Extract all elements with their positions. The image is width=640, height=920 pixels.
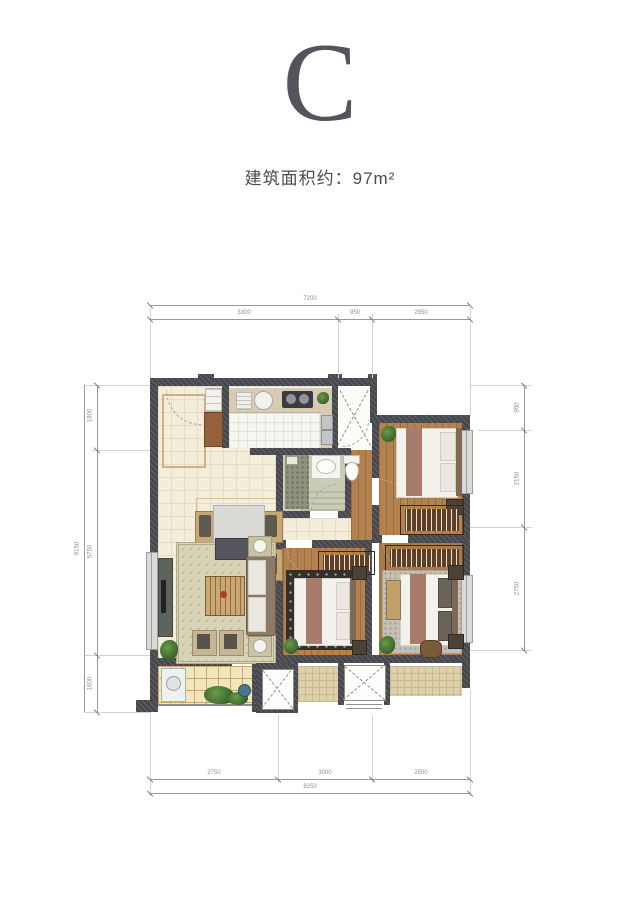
dimension-line-bottom-segments [150,779,470,780]
dimension-line-top-segments [150,319,470,320]
hallway-tile-floor [283,518,351,540]
pillow [336,612,350,640]
sofa-cushion [248,560,266,595]
dimension-line-bottom-total [150,793,470,794]
pillow [440,463,456,492]
bedroom3-window [461,575,473,643]
dimension-line-top-total [150,305,470,306]
dish-rack [236,392,252,410]
wall-bedroom1-top [370,415,470,423]
wall-bedroom1-bottom [372,535,382,543]
dim-bottom-seg: 3000 [310,770,340,777]
armchair-seat [224,634,237,649]
basin-icon [321,430,333,445]
wall-top [150,378,377,386]
extension-line [84,385,150,386]
wall-bedroom1-left [372,423,379,478]
extension-line [338,314,339,378]
bed-runner [406,428,422,496]
pier-top [328,374,342,386]
wall-bedrooms-bottom [276,655,470,663]
headboard [350,578,356,644]
living-plant [160,640,178,660]
pillow-dark [438,578,452,608]
dim-bottom-seg: 2500 [406,770,436,777]
living-room-window [146,552,158,650]
wall-bedroom1-left [372,505,379,535]
armchair-seat [197,634,210,649]
dim-top-seg: 3300 [229,310,259,317]
dimension-line-right-segments [524,385,525,650]
washing-machine-door-icon [166,676,181,691]
dim-right-seg: 950 [515,393,522,423]
dim-top-seg: 2950 [406,310,436,317]
tv-icon [161,580,166,613]
dim-left-seg: 5750 [88,537,95,567]
fridge [204,412,223,447]
sofa-cushion [248,597,266,632]
stairs-lines [346,701,382,709]
bedroom2-plant [284,638,298,654]
counter-plant [317,392,329,404]
core-pier [462,662,470,688]
floor-plan: 7200 3300 950 2950 2750 3000 2500 8250 1… [0,0,640,920]
burner-icon [299,394,309,404]
wall-bath-bottom [338,511,351,518]
wall-bath-top [276,448,351,455]
nightstand [448,565,464,580]
wardrobe [400,505,464,535]
dim-left-seg: 1600 [88,669,95,699]
extension-line [470,308,471,415]
extension-line [278,715,279,782]
pier-top [198,374,214,386]
extension-line [84,655,150,656]
stool [420,640,442,658]
pillow [336,582,350,610]
shower-shelf [286,456,298,465]
wall-kitchen-left [222,386,229,448]
pier-balcony [136,700,158,712]
bed-runner [410,574,426,644]
headboard [456,428,462,496]
dim-left-seg: 1800 [88,401,95,431]
bedroom1-window [461,430,473,494]
chair-seat [265,515,277,537]
entry-cabinet [205,388,222,412]
extension-line [372,314,373,378]
nightstand [448,634,464,649]
corridor-floor-right [390,666,462,696]
dimension-line-left-segments [97,385,98,712]
nightstand [352,640,367,655]
chair-seat [199,515,211,537]
kitchen-sink [254,391,273,410]
pillow [440,432,456,461]
wash-basin-icon [316,459,336,474]
dim-left-total: 9150 [75,534,82,564]
wall-bedroom2-top [312,540,372,548]
dimension-line-left-total [84,385,85,712]
dim-right-seg: 2150 [515,464,522,494]
basin-icon [321,415,333,430]
bed-bench [386,580,401,620]
dim-bottom-seg: 2750 [199,770,229,777]
bed-runner [306,578,322,644]
balcony-pot [238,684,251,697]
bedroom3-plant [379,636,395,654]
burner-icon [286,394,296,404]
extension-line [150,712,151,796]
side-table-top [253,539,267,553]
coffee-table-decor [220,591,227,598]
dim-bottom-total: 8250 [295,784,325,791]
bedroom1-plant [381,426,396,442]
wall-lobby-right [370,386,377,415]
wall-bedroom1-bottom [408,535,470,543]
extension-line [84,712,150,713]
dim-top-seg: 950 [340,310,370,317]
wall-bath-left [276,448,283,518]
extension-line [92,450,150,451]
nightstand [352,566,367,580]
dim-top-total: 7200 [295,296,325,303]
extension-line [372,715,373,782]
side-table-top [253,639,267,653]
dim-right-seg: 2750 [515,574,522,604]
corridor-floor-left [298,666,338,702]
